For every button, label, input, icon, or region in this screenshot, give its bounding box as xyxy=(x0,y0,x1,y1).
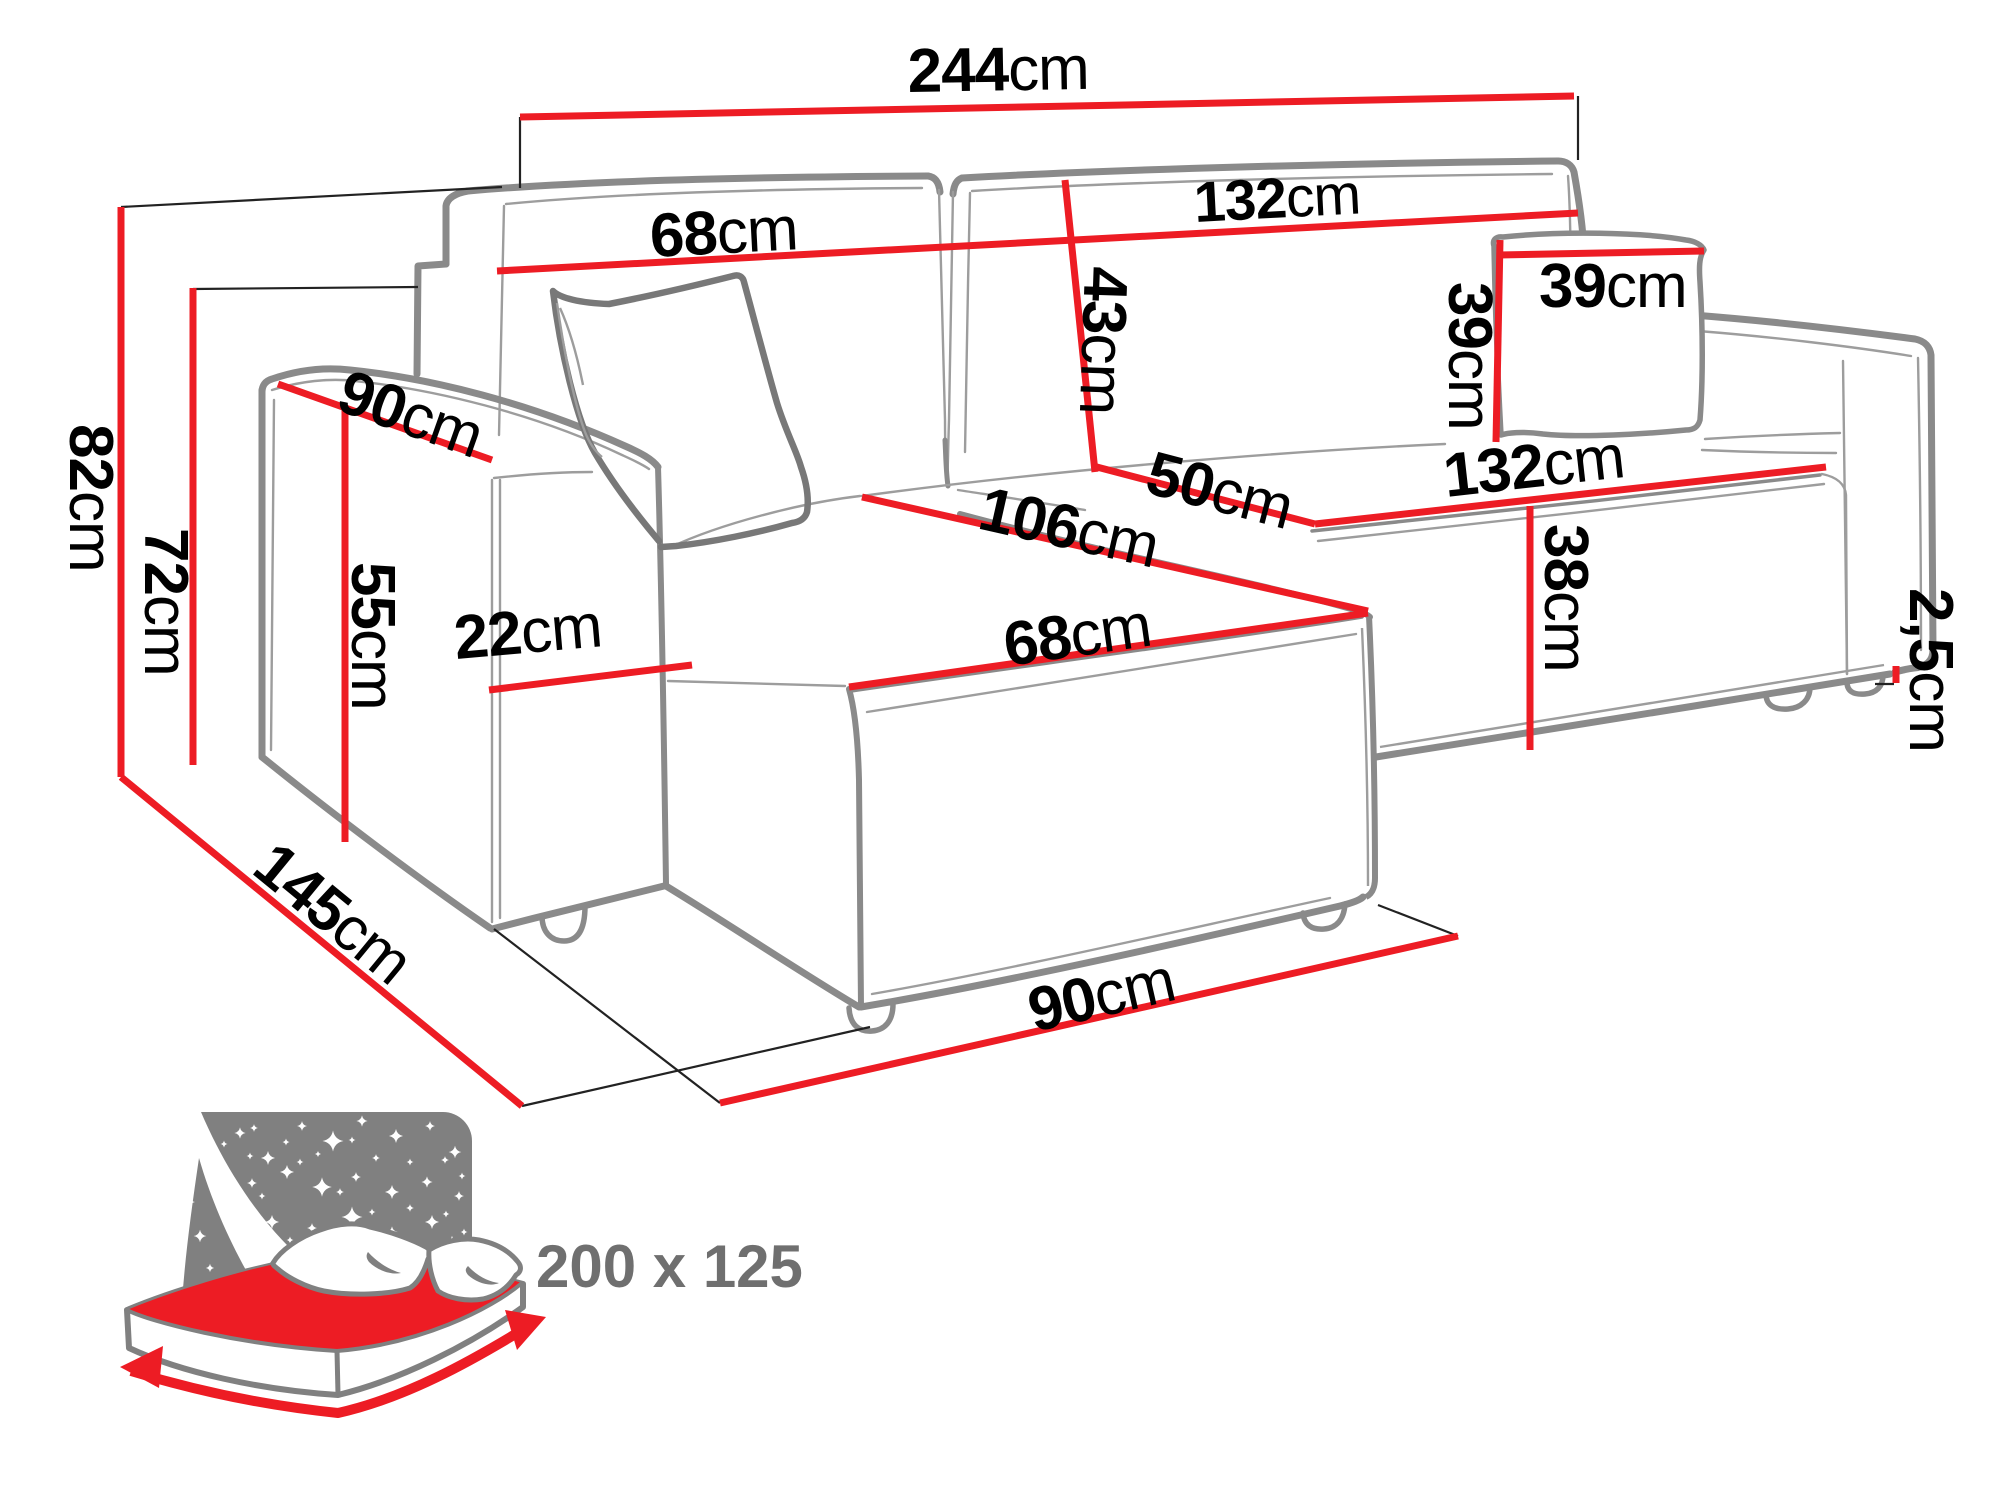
svg-text:43cm: 43cm xyxy=(1066,266,1140,416)
svg-text:39cm: 39cm xyxy=(1539,252,1687,321)
svg-text:2,5cm: 2,5cm xyxy=(1896,588,1965,752)
svg-text:72cm: 72cm xyxy=(131,528,200,676)
svg-text:82cm: 82cm xyxy=(56,424,125,572)
svg-text:38cm: 38cm xyxy=(1531,524,1600,672)
svg-text:244cm: 244cm xyxy=(907,34,1089,106)
svg-text:132cm: 132cm xyxy=(1192,162,1361,235)
svg-text:22cm: 22cm xyxy=(451,591,604,673)
svg-text:68cm: 68cm xyxy=(648,194,799,271)
svg-text:200 x 125: 200 x 125 xyxy=(536,1233,803,1300)
svg-text:55cm: 55cm xyxy=(338,562,407,710)
svg-text:39cm: 39cm xyxy=(1435,282,1504,430)
